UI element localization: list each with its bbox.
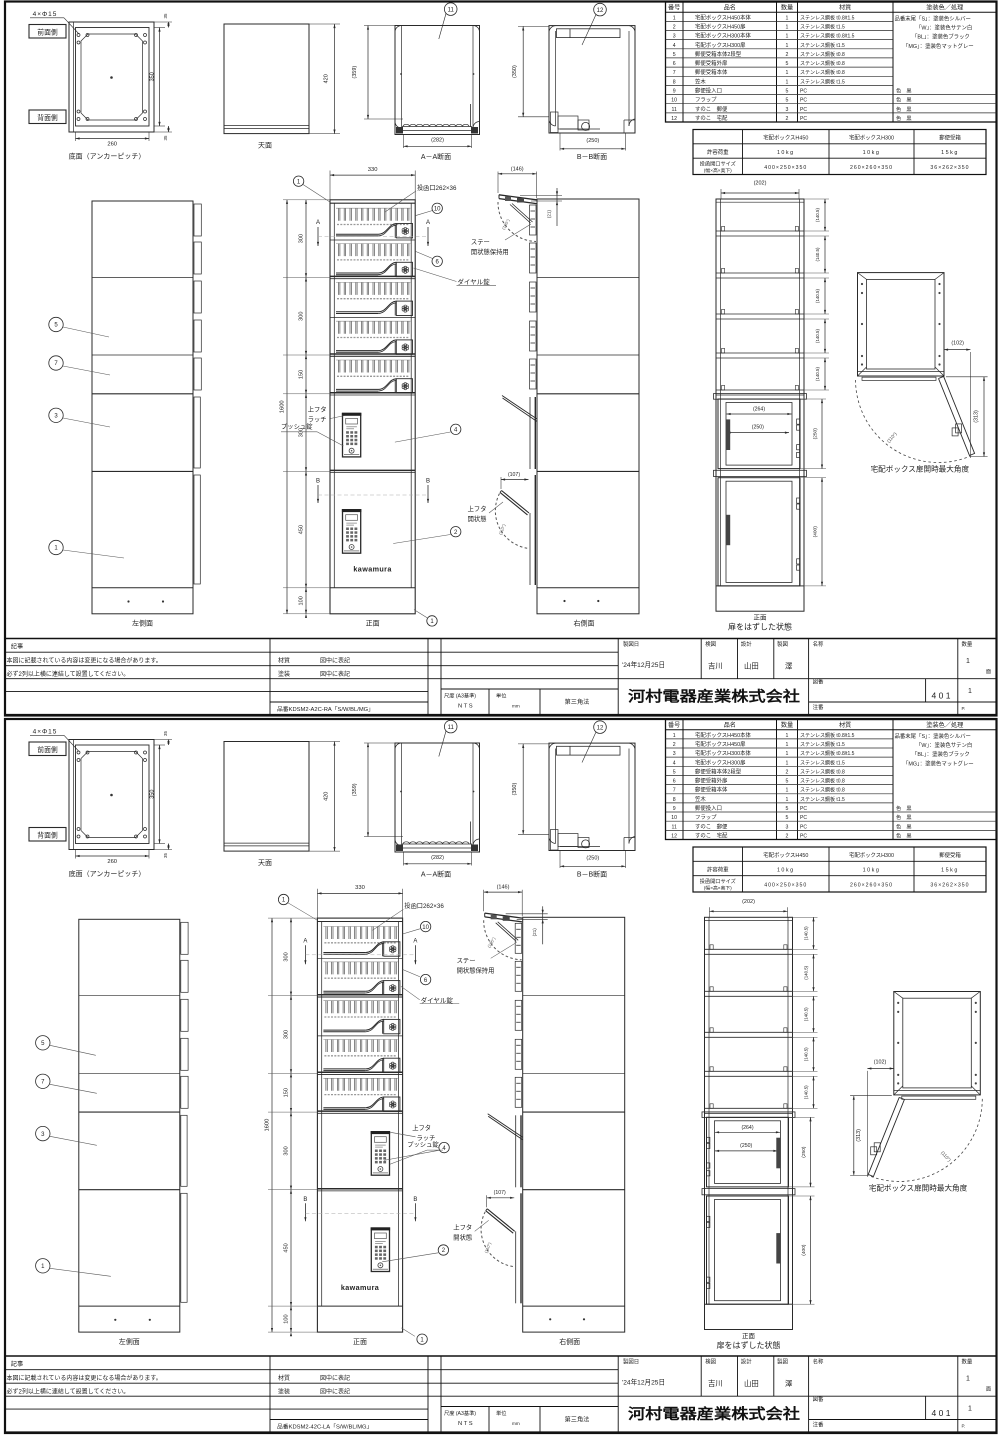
svg-text:郵便受箱本体2段型: 郵便受箱本体2段型 bbox=[695, 50, 742, 58]
svg-text:1: 1 bbox=[673, 733, 676, 739]
svg-text:1: 1 bbox=[786, 733, 789, 739]
svg-text:330: 330 bbox=[355, 885, 365, 891]
svg-text:10: 10 bbox=[434, 207, 441, 213]
svg-text:1: 1 bbox=[968, 688, 972, 695]
svg-text:'24年12月25日: '24年12月25日 bbox=[622, 1378, 665, 1387]
svg-text:正面: 正面 bbox=[754, 614, 768, 622]
svg-text:ステンレス鋼板 t0.8/t1.5: ステンレス鋼板 t0.8/t1.5 bbox=[800, 14, 855, 21]
svg-text:36×262×350: 36×262×350 bbox=[930, 883, 969, 889]
svg-text:6: 6 bbox=[673, 779, 676, 785]
svg-text:9: 9 bbox=[673, 89, 676, 95]
svg-text:35: 35 bbox=[163, 731, 168, 737]
svg-text:P.: P. bbox=[962, 1424, 966, 1429]
svg-text:(250): (250) bbox=[740, 1143, 752, 1149]
svg-text:9: 9 bbox=[673, 806, 676, 812]
svg-text:宅配ボックスH300本体: 宅配ボックスH300本体 bbox=[695, 32, 751, 40]
svg-text:5: 5 bbox=[786, 815, 789, 821]
svg-text:4 0 1: 4 0 1 bbox=[932, 1408, 951, 1418]
svg-text:許容荷重: 許容荷重 bbox=[707, 865, 729, 873]
svg-text:(140.5): (140.5) bbox=[804, 965, 809, 979]
svg-text:ステンレス鋼板 t1.5: ステンレス鋼板 t1.5 bbox=[800, 759, 845, 766]
svg-text:10kg: 10kg bbox=[863, 867, 881, 873]
svg-text:名称: 名称 bbox=[813, 1358, 824, 1366]
svg-text:1: 1 bbox=[786, 797, 789, 803]
svg-text:宅配ボックスH300扉: 宅配ボックスH300扉 bbox=[695, 41, 746, 49]
svg-text:PC: PC bbox=[800, 815, 807, 821]
svg-text:B: B bbox=[303, 1197, 307, 1203]
svg-text:(21): (21) bbox=[547, 209, 552, 218]
svg-text:10kg: 10kg bbox=[777, 150, 795, 156]
svg-text:N T S: N T S bbox=[458, 1421, 473, 1427]
svg-text:図番: 図番 bbox=[813, 1396, 824, 1403]
svg-text:7: 7 bbox=[673, 788, 676, 794]
svg-text:数量: 数量 bbox=[962, 640, 973, 648]
svg-text:品名: 品名 bbox=[724, 721, 736, 729]
svg-text:開状態保持用: 開状態保持用 bbox=[457, 966, 495, 975]
svg-text:ステンレス鋼板 t0.8: ステンレス鋼板 t0.8 bbox=[800, 51, 845, 58]
svg-text:B: B bbox=[413, 1197, 417, 1203]
svg-text:宅配ボックスH450扉: 宅配ボックスH450扉 bbox=[695, 23, 746, 31]
svg-text:郵便投入口: 郵便投入口 bbox=[695, 804, 722, 812]
svg-text:プッシュ錠: プッシュ錠 bbox=[281, 421, 313, 430]
svg-text:1: 1 bbox=[786, 43, 789, 49]
svg-text:4: 4 bbox=[673, 43, 676, 49]
svg-text:300: 300 bbox=[284, 1030, 290, 1039]
svg-text:PC: PC bbox=[800, 806, 807, 812]
svg-text:宅配ボックスH450本体: 宅配ボックスH450本体 bbox=[695, 13, 751, 21]
svg-text:35: 35 bbox=[163, 13, 168, 19]
svg-text:B: B bbox=[316, 479, 320, 485]
svg-text:450: 450 bbox=[299, 525, 305, 534]
svg-text:吉川: 吉川 bbox=[708, 662, 723, 671]
svg-text:350: 350 bbox=[150, 72, 156, 81]
svg-text:色 黒: 色 黒 bbox=[896, 813, 912, 821]
svg-text:1600: 1600 bbox=[265, 1119, 271, 1132]
svg-text:背面側: 背面側 bbox=[37, 831, 58, 840]
svg-text:天面: 天面 bbox=[258, 142, 272, 150]
svg-text:(250): (250) bbox=[752, 425, 764, 431]
svg-text:A－A断面: A－A断面 bbox=[421, 870, 451, 879]
svg-text:ステー: ステー bbox=[457, 957, 476, 965]
svg-text:36×262×350: 36×262×350 bbox=[930, 165, 969, 171]
svg-text:4 0 1: 4 0 1 bbox=[932, 691, 951, 701]
svg-text:PC: PC bbox=[800, 824, 807, 830]
svg-text:塗装色／処理: 塗装色／処理 bbox=[926, 3, 963, 11]
svg-text:(21): (21) bbox=[532, 928, 537, 937]
svg-text:(146): (146) bbox=[497, 885, 510, 891]
svg-text:色 黒: 色 黒 bbox=[896, 832, 912, 840]
svg-text:開状態: 開状態 bbox=[468, 514, 487, 523]
svg-text:(400): (400) bbox=[813, 526, 819, 538]
svg-text:260: 260 bbox=[107, 142, 117, 148]
svg-text:塗装色／処理: 塗装色／処理 bbox=[926, 721, 963, 729]
svg-text:3: 3 bbox=[786, 824, 789, 830]
svg-text:300: 300 bbox=[299, 312, 305, 321]
svg-text:郵便受箱本体: 郵便受箱本体 bbox=[695, 68, 728, 76]
svg-text:1: 1 bbox=[786, 788, 789, 794]
svg-text:澤: 澤 bbox=[785, 1379, 793, 1388]
svg-text:材質: 材質 bbox=[278, 656, 290, 664]
svg-text:(250): (250) bbox=[801, 1146, 807, 1158]
svg-text:10: 10 bbox=[671, 98, 677, 104]
svg-text:プッシュ錠: プッシュ錠 bbox=[407, 1140, 439, 1149]
svg-text:ステー: ステー bbox=[471, 238, 490, 246]
svg-text:B－B断面: B－B断面 bbox=[577, 870, 607, 879]
svg-text:ステンレス鋼板 t0.8: ステンレス鋼板 t0.8 bbox=[800, 787, 845, 794]
svg-text:4×Φ15: 4×Φ15 bbox=[33, 11, 58, 18]
svg-text:郵便受箱: 郵便受箱 bbox=[939, 851, 961, 859]
svg-text:塗装: 塗装 bbox=[278, 1387, 290, 1395]
svg-text:1: 1 bbox=[786, 70, 789, 76]
svg-text:設計: 設計 bbox=[741, 640, 752, 648]
svg-text:尺度 (A3基準): 尺度 (A3基準) bbox=[444, 692, 476, 700]
svg-text:郵便受箱外扉: 郵便受箱外扉 bbox=[695, 59, 728, 67]
svg-text:ステンレス鋼板 t1.5: ステンレス鋼板 t1.5 bbox=[800, 78, 845, 85]
svg-text:正面: 正面 bbox=[742, 1332, 756, 1340]
svg-text:260: 260 bbox=[107, 859, 117, 865]
svg-text:ステンレス鋼板 t1.5: ステンレス鋼板 t1.5 bbox=[800, 741, 845, 748]
svg-text:検図: 検図 bbox=[705, 640, 716, 648]
svg-text:5: 5 bbox=[786, 98, 789, 104]
svg-text:ステンレス鋼板 t1.5: ステンレス鋼板 t1.5 bbox=[800, 796, 845, 803]
svg-text:ステンレス鋼板 t1.5: ステンレス鋼板 t1.5 bbox=[800, 24, 845, 31]
svg-text:ステンレス鋼板 t0.8: ステンレス鋼板 t0.8 bbox=[800, 768, 845, 775]
svg-text:尺度 (A3基準): 尺度 (A3基準) bbox=[444, 1409, 476, 1417]
svg-text:ステンレス鋼板 t1.5: ステンレス鋼板 t1.5 bbox=[800, 42, 845, 49]
svg-text:山田: 山田 bbox=[744, 662, 759, 671]
svg-text:(359): (359) bbox=[352, 783, 358, 796]
svg-text:投函口262×36: 投函口262×36 bbox=[417, 184, 457, 192]
svg-text:(350): (350) bbox=[512, 65, 518, 78]
svg-text:420: 420 bbox=[324, 792, 330, 801]
svg-text:品番末尾「S」：塗装色シルバー: 品番末尾「S」：塗装色シルバー bbox=[895, 732, 971, 740]
svg-text:10kg: 10kg bbox=[863, 150, 881, 156]
svg-text:15kg: 15kg bbox=[941, 867, 959, 873]
svg-text:330: 330 bbox=[368, 167, 378, 173]
svg-text:郵便受箱: 郵便受箱 bbox=[939, 134, 961, 142]
svg-text:kawamura: kawamura bbox=[341, 1283, 380, 1292]
svg-text:400×250×350: 400×250×350 bbox=[764, 883, 807, 889]
svg-text:宅配ボックス扉開時最大角度: 宅配ボックス扉開時最大角度 bbox=[869, 1182, 968, 1192]
svg-text:1: 1 bbox=[786, 34, 789, 40]
svg-text:番号: 番号 bbox=[668, 722, 680, 729]
svg-text:品番KDSM2-A2C-RA「S/W/BL/MG」: 品番KDSM2-A2C-RA「S/W/BL/MG」 bbox=[277, 706, 374, 713]
svg-text:5: 5 bbox=[673, 769, 676, 775]
svg-text:(250): (250) bbox=[813, 428, 819, 440]
svg-text:扉をはずした状態: 扉をはずした状態 bbox=[717, 1340, 781, 1350]
svg-text:右側面: 右側面 bbox=[559, 1337, 580, 1346]
svg-text:300: 300 bbox=[299, 234, 305, 243]
svg-text:郵便受箱外扉: 郵便受箱外扉 bbox=[695, 777, 728, 785]
svg-text:15kg: 15kg bbox=[941, 150, 959, 156]
svg-text:PC: PC bbox=[800, 834, 807, 840]
svg-text:(282): (282) bbox=[431, 855, 444, 861]
svg-text:上フタ: 上フタ bbox=[412, 1123, 431, 1132]
svg-text:記事: 記事 bbox=[11, 1360, 23, 1368]
svg-text:天面: 天面 bbox=[258, 859, 272, 867]
svg-text:ダイヤル錠: ダイヤル錠 bbox=[457, 277, 490, 286]
svg-text:製図: 製図 bbox=[777, 1358, 788, 1366]
svg-text:河村電器産業株式会社: 河村電器産業株式会社 bbox=[628, 1405, 801, 1423]
svg-text:すのこ 郵便: すのこ 郵便 bbox=[695, 822, 728, 830]
svg-text:A: A bbox=[303, 938, 307, 944]
svg-text:420: 420 bbox=[324, 74, 330, 83]
svg-text:必ず2列以上横に連結して設置してください。: 必ず2列以上横に連結して設置してください。 bbox=[7, 670, 130, 678]
svg-text:開状態保持用: 開状態保持用 bbox=[471, 247, 509, 256]
svg-text:塗装: 塗装 bbox=[278, 670, 290, 678]
svg-text:N T S: N T S bbox=[458, 704, 473, 710]
svg-text:色 黒: 色 黒 bbox=[896, 822, 912, 830]
svg-text:(264): (264) bbox=[753, 407, 765, 413]
svg-text:扉をはずした状態: 扉をはずした状態 bbox=[728, 622, 792, 632]
svg-text:(140.5): (140.5) bbox=[804, 1047, 809, 1061]
svg-text:澤: 澤 bbox=[785, 662, 793, 671]
svg-text:35: 35 bbox=[163, 135, 168, 141]
svg-text:1: 1 bbox=[968, 1406, 972, 1413]
svg-text:数量: 数量 bbox=[781, 721, 793, 729]
svg-text:ステンレス鋼板 t0.8: ステンレス鋼板 t0.8 bbox=[800, 778, 845, 785]
svg-text:(102): (102) bbox=[874, 1059, 887, 1065]
svg-text:8: 8 bbox=[673, 79, 676, 85]
svg-text:(140.5): (140.5) bbox=[804, 1007, 809, 1021]
svg-text:(282): (282) bbox=[431, 138, 444, 144]
svg-text:本図に記載されている内容は変更になる場合があります。: 本図に記載されている内容は変更になる場合があります。 bbox=[7, 656, 162, 664]
svg-text:12: 12 bbox=[671, 116, 677, 122]
svg-text:品番末尾「S」：塗装色シルバー: 品番末尾「S」：塗装色シルバー bbox=[895, 15, 971, 23]
svg-text:1: 1 bbox=[966, 1376, 970, 1383]
svg-text:宅配ボックス扉開時最大角度: 宅配ボックス扉開時最大角度 bbox=[871, 464, 970, 474]
svg-text:260×260×350: 260×260×350 bbox=[850, 165, 893, 171]
svg-text:すのこ 郵便: すのこ 郵便 bbox=[695, 105, 728, 113]
svg-text:350: 350 bbox=[150, 790, 156, 799]
svg-text:'24年12月25日: '24年12月25日 bbox=[622, 660, 665, 669]
svg-text:上フタ: 上フタ bbox=[308, 405, 327, 414]
svg-text:(250): (250) bbox=[586, 855, 599, 861]
svg-text:番号: 番号 bbox=[668, 4, 680, 11]
svg-text:(140.5): (140.5) bbox=[815, 289, 820, 303]
svg-text:(350): (350) bbox=[512, 783, 518, 796]
svg-text:(313): (313) bbox=[974, 410, 980, 423]
svg-text:5: 5 bbox=[786, 806, 789, 812]
svg-text:2: 2 bbox=[673, 25, 676, 31]
svg-text:11: 11 bbox=[448, 725, 455, 731]
svg-text:PC: PC bbox=[800, 98, 807, 104]
svg-text:記事: 記事 bbox=[11, 643, 23, 651]
svg-text:300: 300 bbox=[284, 952, 290, 961]
svg-text:1: 1 bbox=[786, 25, 789, 31]
svg-text:(140.5): (140.5) bbox=[815, 329, 820, 343]
svg-text:材質: 材質 bbox=[839, 721, 851, 729]
svg-text:2: 2 bbox=[786, 52, 789, 58]
svg-text:「BL」：塗装色ブラック: 「BL」：塗装色ブラック bbox=[912, 33, 970, 41]
svg-text:宅配ボックスH300: 宅配ボックスH300 bbox=[849, 851, 894, 859]
svg-text:「MG」：塗装色マットグレー: 「MG」：塗装色マットグレー bbox=[903, 759, 974, 767]
svg-text:4: 4 bbox=[673, 760, 676, 766]
svg-text:「W」：塗装色サテン白: 「W」：塗装色サテン白 bbox=[916, 741, 972, 749]
svg-text:図中に表記: 図中に表記 bbox=[320, 1387, 350, 1395]
svg-text:左側面: 左側面 bbox=[132, 619, 153, 628]
svg-text:6: 6 bbox=[673, 61, 676, 67]
svg-text:ステンレス鋼板 t0.8/t1.5: ステンレス鋼板 t0.8/t1.5 bbox=[800, 732, 855, 739]
svg-text:品名: 品名 bbox=[724, 3, 736, 11]
svg-text:11: 11 bbox=[672, 824, 677, 830]
svg-text:注番: 注番 bbox=[813, 703, 824, 711]
svg-text:正面: 正面 bbox=[353, 1338, 367, 1346]
svg-text:(202): (202) bbox=[742, 899, 755, 905]
svg-text:数量: 数量 bbox=[781, 3, 793, 11]
svg-text:5: 5 bbox=[786, 61, 789, 67]
svg-text:A: A bbox=[426, 220, 430, 226]
svg-text:ステンレス鋼板 t0.8: ステンレス鋼板 t0.8 bbox=[800, 69, 845, 76]
svg-text:右側面: 右側面 bbox=[574, 619, 595, 628]
svg-text:(359): (359) bbox=[352, 66, 358, 79]
svg-text:1: 1 bbox=[786, 742, 789, 748]
svg-text:2: 2 bbox=[786, 769, 789, 775]
svg-text:(107): (107) bbox=[508, 472, 520, 478]
svg-text:「MG」：塗装色マットグレー: 「MG」：塗装色マットグレー bbox=[903, 42, 974, 50]
svg-text:投函開口サイズ: 投函開口サイズ bbox=[700, 877, 736, 885]
svg-text:B－B断面: B－B断面 bbox=[577, 152, 607, 161]
svg-text:検図: 検図 bbox=[705, 1358, 716, 1366]
svg-text:本図に記載されている内容は変更になる場合があります。: 本図に記載されている内容は変更になる場合があります。 bbox=[7, 1374, 162, 1382]
svg-text:色 黒: 色 黒 bbox=[896, 87, 912, 95]
svg-text:底面（アンカーピッチ）: 底面（アンカーピッチ） bbox=[69, 152, 146, 161]
svg-text:3: 3 bbox=[673, 751, 676, 757]
svg-text:許容荷重: 許容荷重 bbox=[707, 148, 729, 156]
svg-text:開状態: 開状態 bbox=[453, 1232, 472, 1241]
svg-text:色 黒: 色 黒 bbox=[896, 804, 912, 812]
svg-text:単位: 単位 bbox=[496, 692, 506, 700]
svg-text:山田: 山田 bbox=[744, 1379, 759, 1388]
svg-text:10kg: 10kg bbox=[777, 867, 795, 873]
svg-text:(400): (400) bbox=[801, 1244, 807, 1256]
svg-text:PC: PC bbox=[800, 107, 807, 113]
svg-text:(幅×高×奥下): (幅×高×奥下) bbox=[704, 167, 732, 174]
svg-text:宅配ボックスH300本体: 宅配ボックスH300本体 bbox=[695, 749, 751, 757]
svg-text:3: 3 bbox=[786, 107, 789, 113]
svg-text:色 黒: 色 黒 bbox=[896, 105, 912, 113]
svg-text:図番: 図番 bbox=[813, 679, 824, 686]
svg-text:製図日: 製図日 bbox=[623, 1358, 639, 1366]
svg-text:5: 5 bbox=[673, 52, 676, 58]
svg-text:図中に表記: 図中に表記 bbox=[320, 1374, 350, 1382]
svg-text:(107): (107) bbox=[494, 1190, 506, 1196]
svg-text:P.: P. bbox=[962, 706, 966, 711]
svg-text:2: 2 bbox=[786, 834, 789, 840]
svg-text:上フタ: 上フタ bbox=[468, 504, 487, 513]
svg-text:注番: 注番 bbox=[813, 1421, 824, 1429]
svg-text:宅配ボックスH300: 宅配ボックスH300 bbox=[849, 134, 894, 142]
svg-text:正面: 正面 bbox=[366, 620, 380, 628]
svg-text:(140.5): (140.5) bbox=[815, 247, 820, 261]
svg-text:10: 10 bbox=[671, 815, 677, 821]
svg-text:400×250×350: 400×250×350 bbox=[764, 165, 807, 171]
svg-text:(140.5): (140.5) bbox=[815, 367, 820, 381]
svg-text:1: 1 bbox=[673, 15, 676, 21]
svg-text:吉川: 吉川 bbox=[708, 1379, 723, 1388]
svg-text:450: 450 bbox=[284, 1243, 290, 1252]
svg-text:第三角法: 第三角法 bbox=[565, 698, 590, 706]
svg-text:ステンレス鋼板 t0.8: ステンレス鋼板 t0.8 bbox=[800, 60, 845, 67]
svg-text:(140.5): (140.5) bbox=[804, 1085, 809, 1099]
svg-text:10: 10 bbox=[422, 925, 429, 931]
svg-text:1: 1 bbox=[786, 15, 789, 21]
svg-text:底面（アンカーピッチ）: 底面（アンカーピッチ） bbox=[69, 869, 146, 878]
svg-text:A: A bbox=[316, 220, 320, 226]
svg-text:7: 7 bbox=[673, 70, 676, 76]
svg-text:品番KDSM2-42C-LA「S/W/BL/MG」: 品番KDSM2-42C-LA「S/W/BL/MG」 bbox=[277, 1424, 372, 1431]
svg-text:ステンレス鋼板 t0.8/t1.5: ステンレス鋼板 t0.8/t1.5 bbox=[800, 33, 855, 40]
svg-text:材質: 材質 bbox=[278, 1374, 290, 1382]
svg-text:面: 面 bbox=[986, 1386, 991, 1393]
svg-text:1600: 1600 bbox=[280, 400, 286, 413]
svg-text:5: 5 bbox=[786, 779, 789, 785]
svg-text:1: 1 bbox=[786, 751, 789, 757]
svg-text:(250): (250) bbox=[586, 138, 599, 144]
svg-text:5: 5 bbox=[786, 89, 789, 95]
svg-text:11: 11 bbox=[672, 107, 677, 113]
svg-text:(202): (202) bbox=[754, 181, 767, 187]
svg-text:(313): (313) bbox=[856, 1129, 862, 1142]
svg-text:PC: PC bbox=[800, 89, 807, 95]
svg-text:「W」：塗装色サテン白: 「W」：塗装色サテン白 bbox=[916, 24, 972, 32]
svg-text:色 黒: 色 黒 bbox=[896, 96, 912, 104]
svg-text:前面側: 前面側 bbox=[37, 745, 58, 754]
svg-text:kawamura: kawamura bbox=[353, 565, 392, 574]
svg-text:150: 150 bbox=[284, 1088, 290, 1097]
svg-text:図中に表記: 図中に表記 bbox=[320, 670, 350, 678]
svg-text:郵便受箱本体2段型: 郵便受箱本体2段型 bbox=[695, 767, 742, 775]
svg-text:(102): (102) bbox=[951, 341, 964, 347]
svg-text:300: 300 bbox=[284, 1146, 290, 1155]
svg-text:4×Φ15: 4×Φ15 bbox=[33, 729, 58, 736]
svg-text:1: 1 bbox=[786, 760, 789, 766]
svg-text:色 黒: 色 黒 bbox=[896, 114, 912, 122]
svg-text:(140.5): (140.5) bbox=[804, 926, 809, 940]
svg-text:12: 12 bbox=[671, 834, 677, 840]
svg-text:前面側: 前面側 bbox=[37, 28, 58, 37]
svg-text:ステンレス鋼板 t0.8/t1.5: ステンレス鋼板 t0.8/t1.5 bbox=[800, 750, 855, 757]
svg-text:名称: 名称 bbox=[813, 640, 824, 648]
svg-text:設計: 設計 bbox=[741, 1358, 752, 1366]
svg-text:第三角法: 第三角法 bbox=[565, 1416, 590, 1424]
svg-text:背面側: 背面側 bbox=[37, 113, 58, 122]
svg-text:すのこ 宅配: すのこ 宅配 bbox=[695, 832, 728, 840]
svg-text:投函開口サイズ: 投函開口サイズ bbox=[700, 160, 736, 168]
svg-text:数量: 数量 bbox=[962, 1358, 973, 1366]
svg-text:12: 12 bbox=[597, 725, 604, 731]
svg-text:1: 1 bbox=[786, 79, 789, 85]
svg-text:(146): (146) bbox=[511, 166, 524, 172]
svg-text:(264): (264) bbox=[741, 1125, 753, 1131]
svg-text:12: 12 bbox=[597, 8, 604, 14]
svg-text:ラッチ: ラッチ bbox=[308, 416, 327, 424]
svg-text:すのこ 宅配: すのこ 宅配 bbox=[695, 114, 728, 122]
svg-text:フラップ: フラップ bbox=[695, 814, 717, 821]
svg-text:面: 面 bbox=[986, 668, 991, 675]
svg-text:(幅×高×奥下): (幅×高×奥下) bbox=[704, 885, 732, 892]
svg-text:(140.5): (140.5) bbox=[815, 208, 820, 222]
svg-text:材質: 材質 bbox=[839, 3, 851, 11]
svg-text:宅配ボックスH450扉: 宅配ボックスH450扉 bbox=[695, 740, 746, 748]
svg-text:左側面: 左側面 bbox=[119, 1337, 140, 1346]
svg-text:「BL」：塗装色ブラック: 「BL」：塗装色ブラック bbox=[912, 750, 970, 758]
svg-text:1: 1 bbox=[966, 658, 970, 665]
svg-text:上フタ: 上フタ bbox=[453, 1222, 472, 1231]
svg-text:製図: 製図 bbox=[777, 640, 788, 648]
svg-text:宅配ボックスH450本体: 宅配ボックスH450本体 bbox=[695, 731, 751, 739]
svg-text:製図日: 製図日 bbox=[623, 640, 639, 648]
